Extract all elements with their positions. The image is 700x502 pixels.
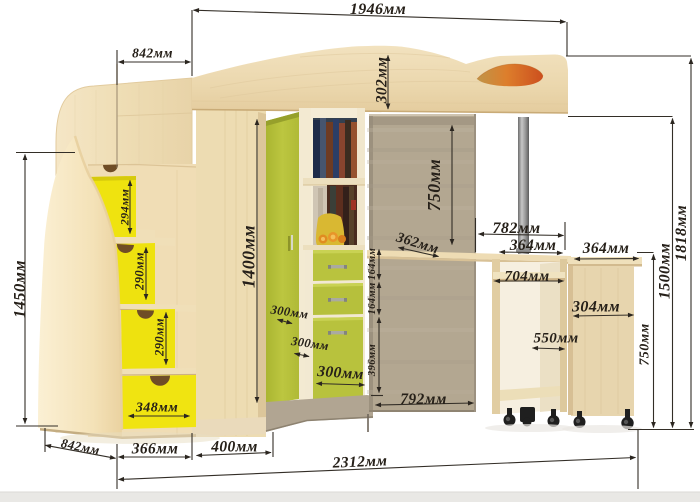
svg-text:348мм: 348мм [135,401,178,416]
svg-text:366мм: 366мм [131,441,179,458]
svg-text:396мм: 396мм [367,344,378,377]
svg-text:364мм: 364мм [509,237,557,254]
svg-text:1818мм: 1818мм [673,205,690,261]
svg-text:294мм: 294мм [118,189,132,226]
svg-text:1500мм: 1500мм [657,243,674,299]
svg-text:302мм: 302мм [374,57,391,105]
svg-text:792мм: 792мм [400,391,447,408]
svg-text:1400мм: 1400мм [239,225,259,288]
svg-text:290мм: 290мм [153,318,167,357]
svg-text:750мм: 750мм [638,323,653,365]
svg-text:300мм: 300мм [316,363,365,383]
svg-text:400мм: 400мм [210,439,258,456]
svg-text:364мм: 364мм [582,240,630,257]
svg-text:290мм: 290мм [133,252,147,291]
svg-text:304мм: 304мм [571,299,620,316]
svg-text:2312мм: 2312мм [331,452,387,471]
svg-text:750мм: 750мм [424,159,444,211]
svg-text:782мм: 782мм [493,220,541,237]
svg-text:1450мм: 1450мм [10,260,29,318]
svg-text:550мм: 550мм [533,331,578,347]
svg-text:164мм: 164мм [367,248,378,280]
svg-text:842мм: 842мм [132,46,173,61]
svg-text:164мм: 164мм [367,282,378,314]
svg-text:704мм: 704мм [504,269,549,285]
svg-text:1946мм: 1946мм [350,1,406,18]
